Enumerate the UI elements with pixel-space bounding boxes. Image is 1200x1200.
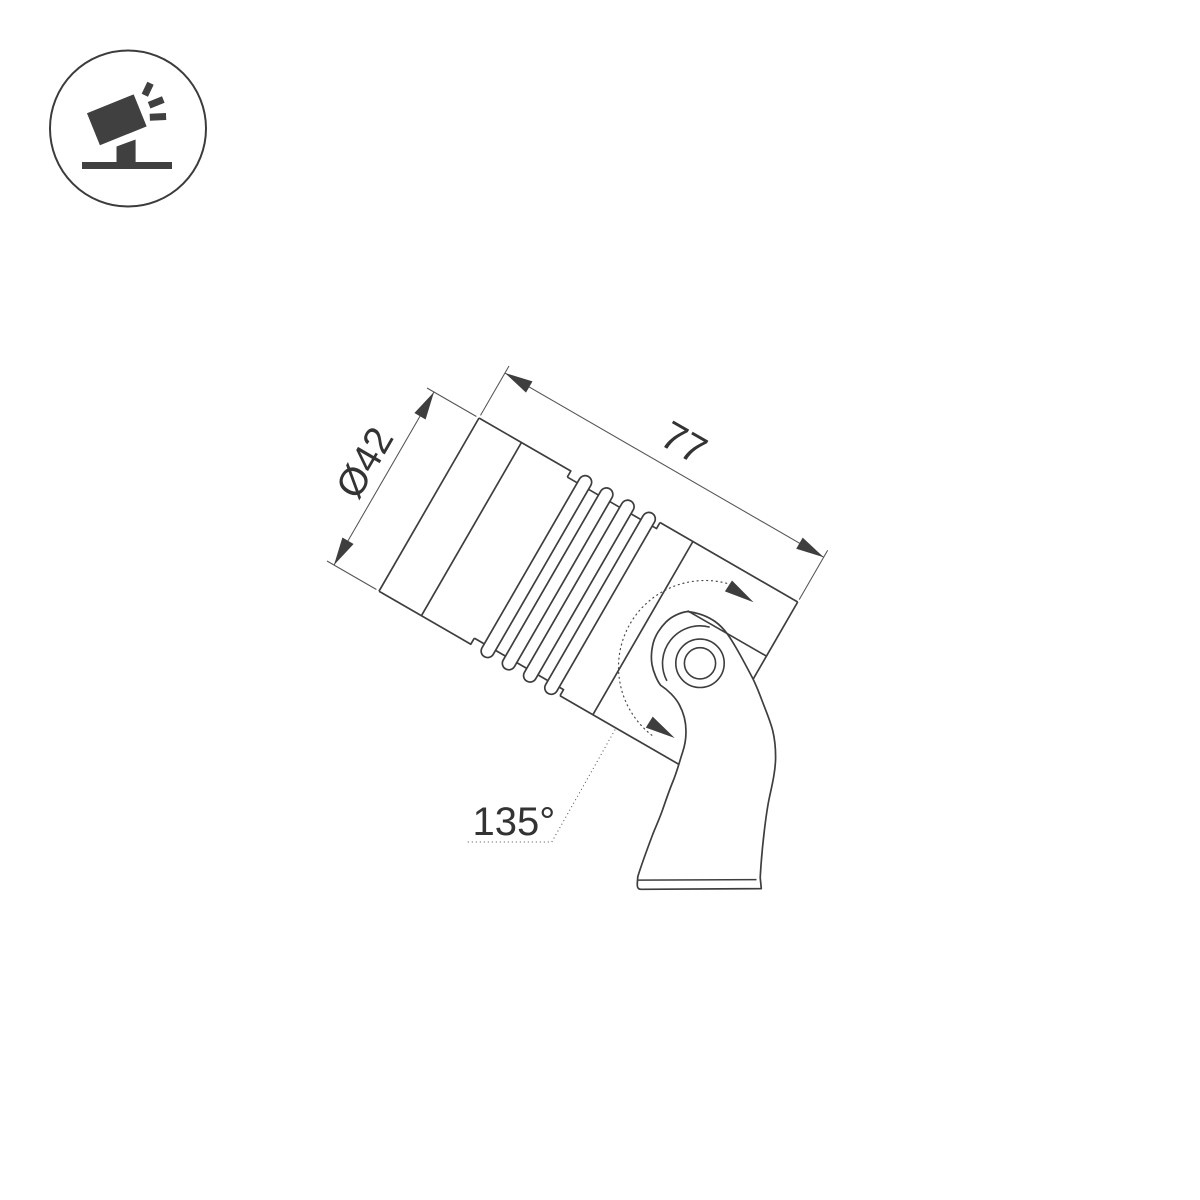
svg-text:135°: 135° [473, 800, 556, 844]
